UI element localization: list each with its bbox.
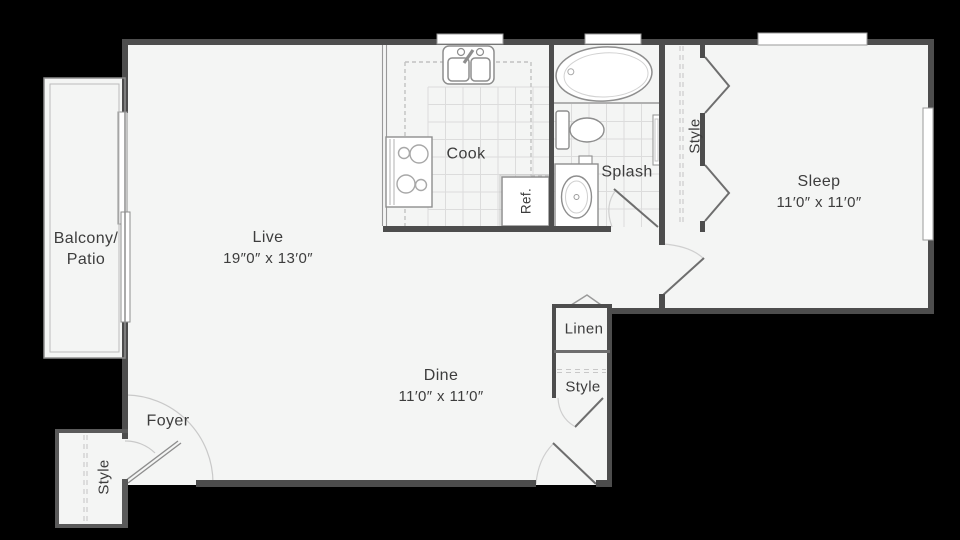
room-label-entry-closet: Style [94, 459, 115, 494]
stove [386, 137, 432, 207]
balcony-floor [44, 78, 125, 358]
balcony-label-line2: Patio [54, 249, 119, 270]
live-dims: 19″0″ x 13′0″ [223, 248, 313, 269]
floor-areas [44, 42, 930, 527]
room-label-linen: Linen [565, 319, 604, 340]
bedroom-window-right [923, 108, 933, 240]
dine-dims: 11′0″ x 11′0″ [398, 386, 483, 407]
bedroom-window-top [758, 33, 867, 45]
room-label-ref: Ref. [516, 188, 537, 214]
room-label-hall-closet: Style [565, 377, 600, 398]
bath-window [585, 34, 641, 44]
sleep-dims: 11′0″ x 11′0″ [776, 192, 861, 213]
room-label-dine: Dine 11′0″ x 11′0″ [398, 365, 483, 407]
live-name: Live [223, 227, 313, 248]
floor-plan: Balcony/ Patio Live 19″0″ x 13′0″ Cook R… [0, 0, 960, 540]
floor-plan-drawing [0, 0, 960, 540]
kitchen-window [437, 34, 503, 44]
room-label-sleep: Sleep 11′0″ x 11′0″ [776, 171, 861, 213]
kitchen-sink [443, 46, 494, 84]
room-label-foyer: Foyer [147, 411, 190, 432]
wall-cabinet [653, 115, 660, 165]
dine-name: Dine [398, 365, 483, 386]
room-label-splash: Splash [601, 162, 652, 183]
vanity-sink [555, 156, 598, 229]
room-label-bedroom-closet: Style [685, 118, 706, 153]
balcony-label-line1: Balcony/ [54, 228, 119, 249]
room-label-balcony: Balcony/ Patio [54, 228, 119, 270]
sleep-name: Sleep [776, 171, 861, 192]
entry-closet-floor [57, 430, 125, 527]
room-label-cook: Cook [447, 144, 486, 165]
main-living-area-floor [125, 42, 662, 485]
room-label-live: Live 19″0″ x 13′0″ [223, 227, 313, 269]
